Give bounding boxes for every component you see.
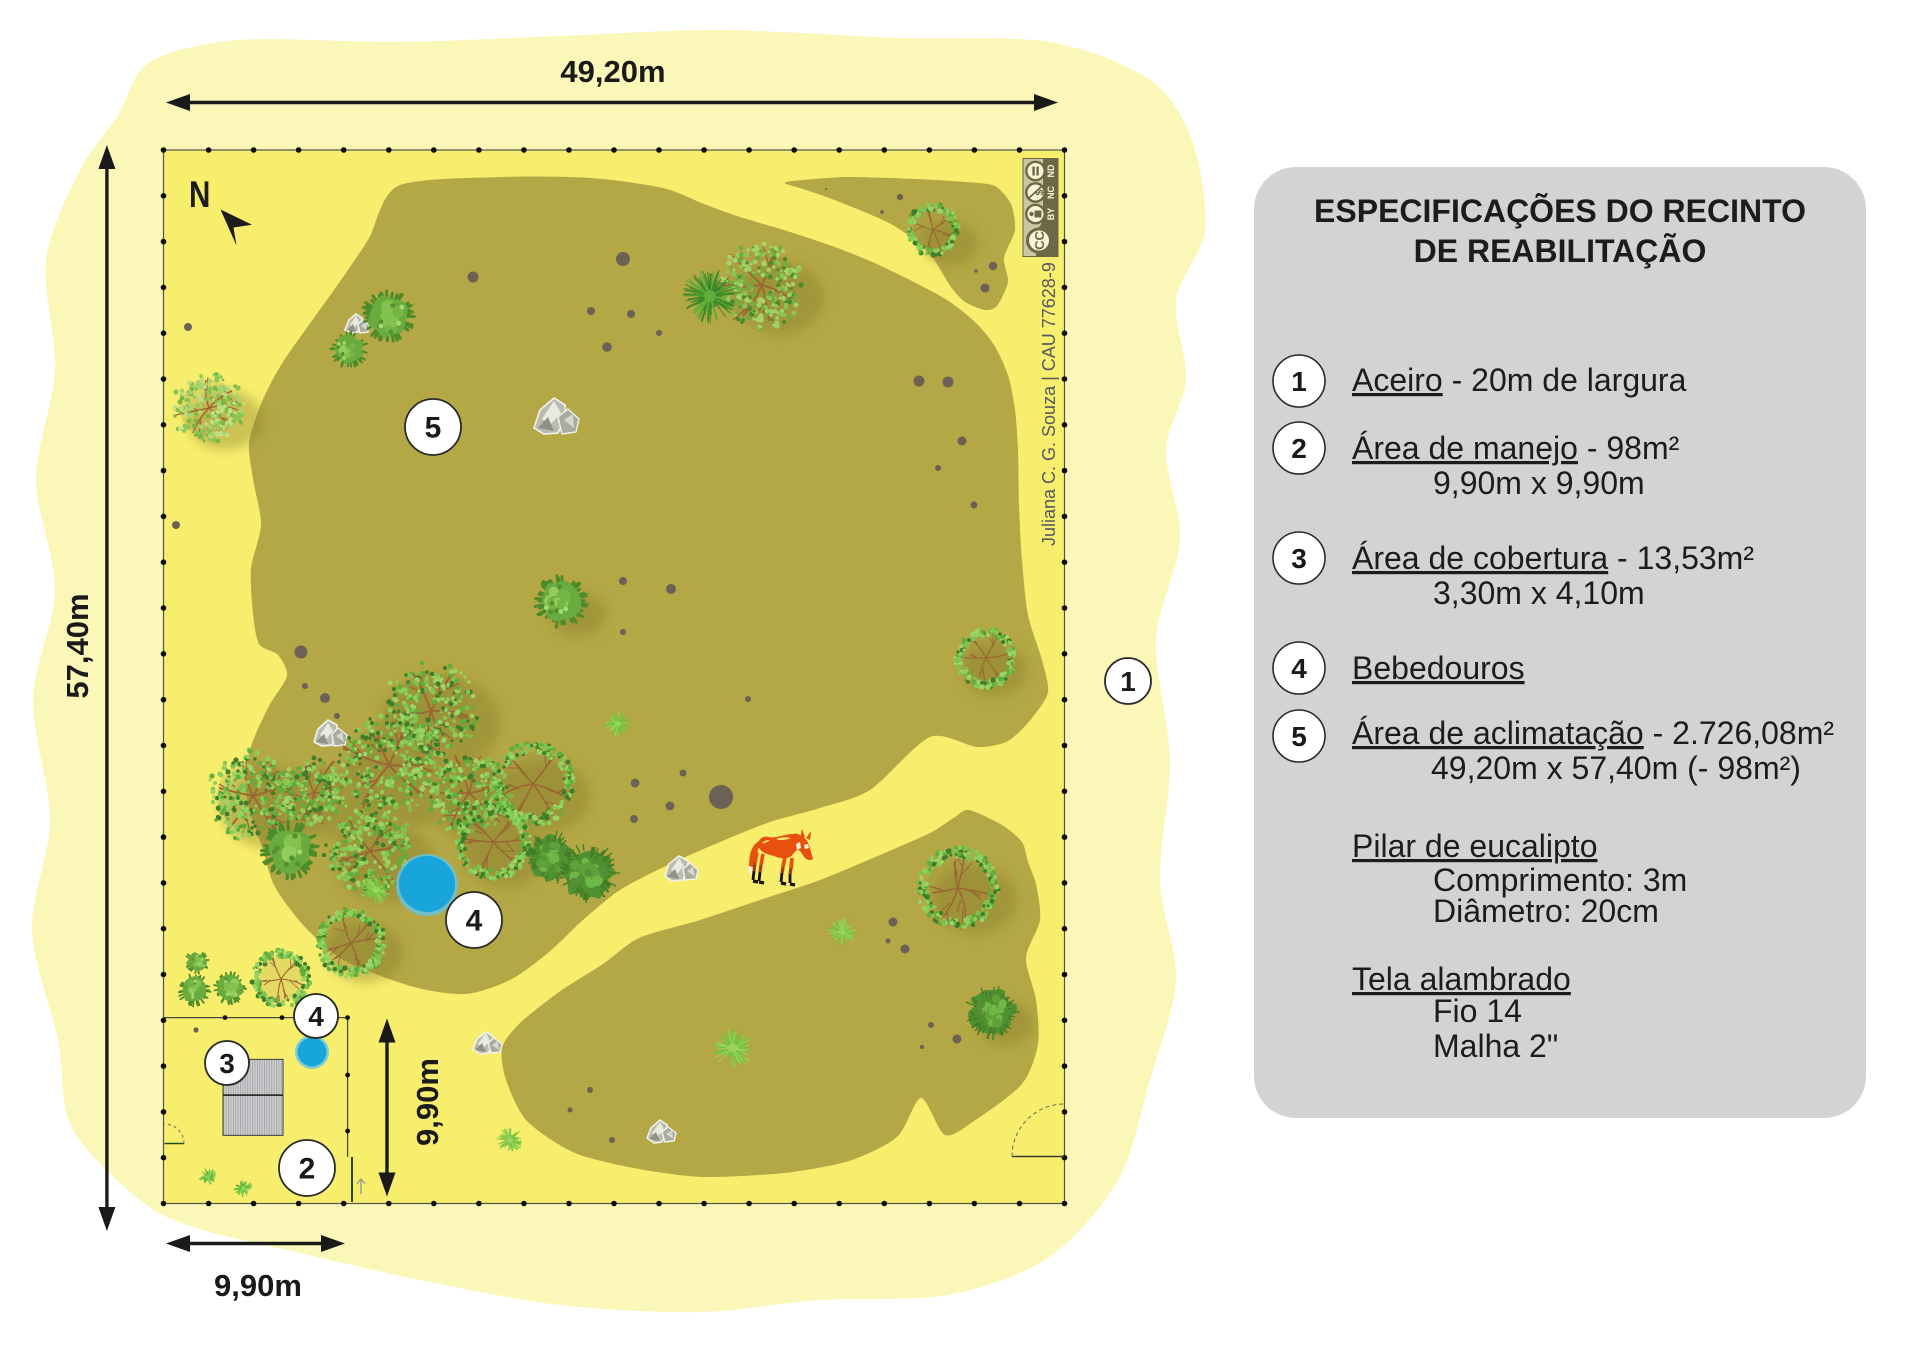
svg-text:Área de cobertura - 13,53m²: Área de cobertura - 13,53m² — [1352, 540, 1754, 576]
svg-text:5: 5 — [1291, 721, 1307, 752]
svg-text:49,20m: 49,20m — [560, 54, 665, 89]
svg-text:Aceiro - 20m de largura: Aceiro - 20m de largura — [1352, 362, 1687, 398]
svg-text:N: N — [189, 175, 210, 216]
svg-text:Fio 14: Fio 14 — [1433, 993, 1522, 1029]
svg-text:ND: ND — [1046, 164, 1056, 177]
svg-text:DE REABILITAÇÃO: DE REABILITAÇÃO — [1414, 233, 1707, 269]
svg-text:57,40m: 57,40m — [60, 593, 95, 698]
svg-text:Juliana C. G. Souza | CAU 7762: Juliana C. G. Souza | CAU 77628-9 — [1039, 262, 1059, 546]
svg-text:Pilar de eucalipto: Pilar de eucalipto — [1352, 828, 1597, 864]
svg-text:1: 1 — [1291, 366, 1307, 397]
svg-text:4: 4 — [466, 905, 483, 938]
svg-text:3: 3 — [1291, 543, 1307, 574]
svg-text:ESPECIFICAÇÕES DO RECINTO: ESPECIFICAÇÕES DO RECINTO — [1314, 193, 1806, 229]
svg-text:49,20m x 57,40m (- 98m²): 49,20m x 57,40m (- 98m²) — [1431, 750, 1801, 786]
svg-text:Malha 2": Malha 2" — [1433, 1028, 1558, 1064]
svg-text:Bebedouros: Bebedouros — [1352, 650, 1525, 686]
svg-text:Diâmetro: 20cm: Diâmetro: 20cm — [1433, 893, 1659, 929]
svg-text:BY: BY — [1046, 208, 1056, 221]
svg-text:4: 4 — [1291, 653, 1307, 684]
svg-text:4: 4 — [308, 1001, 324, 1032]
svg-text:9,90m: 9,90m — [214, 1268, 302, 1303]
svg-text:1: 1 — [1120, 666, 1136, 697]
svg-text:NC: NC — [1046, 186, 1056, 199]
svg-text:Área de aclimatação - 2.726,08: Área de aclimatação - 2.726,08m² — [1352, 715, 1834, 751]
svg-text:Tela alambrado: Tela alambrado — [1352, 961, 1571, 997]
svg-text:Área de manejo - 98m²: Área de manejo - 98m² — [1352, 430, 1680, 466]
svg-text:5: 5 — [425, 412, 442, 445]
svg-text:2: 2 — [299, 1153, 316, 1186]
svg-text:CC: CC — [1032, 231, 1047, 250]
svg-text:3,30m x 4,10m: 3,30m x 4,10m — [1433, 575, 1645, 611]
svg-text:$: $ — [1034, 189, 1046, 195]
svg-text:9,90m x 9,90m: 9,90m x 9,90m — [1433, 465, 1645, 501]
svg-text:2: 2 — [1291, 433, 1307, 464]
svg-text:3: 3 — [219, 1048, 235, 1079]
svg-text:9,90m: 9,90m — [410, 1058, 445, 1146]
